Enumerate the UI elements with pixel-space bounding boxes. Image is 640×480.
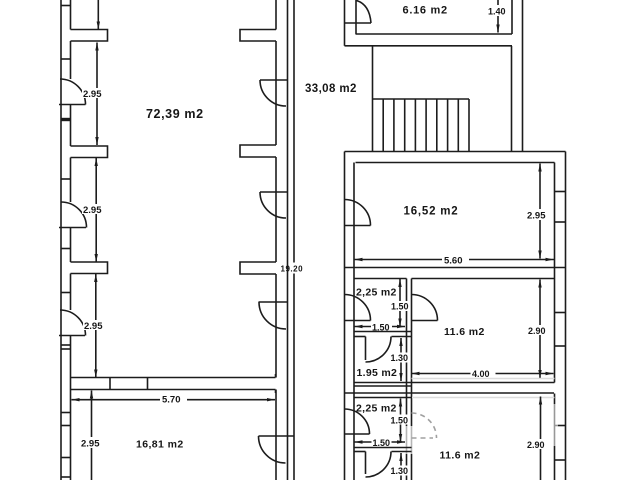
svg-text:1.50: 1.50 xyxy=(391,416,409,426)
svg-text:5.70: 5.70 xyxy=(162,395,181,406)
svg-text:1.95 m2: 1.95 m2 xyxy=(357,367,398,379)
svg-text:11.6 m2: 11.6 m2 xyxy=(440,450,481,462)
svg-text:2.95: 2.95 xyxy=(81,439,100,450)
svg-text:4.00: 4.00 xyxy=(472,369,490,379)
svg-text:1.50: 1.50 xyxy=(373,438,391,448)
svg-text:1.30: 1.30 xyxy=(391,353,409,363)
svg-text:33,08 m2: 33,08 m2 xyxy=(305,83,357,95)
svg-text:1.40: 1.40 xyxy=(488,7,506,17)
svg-text:2.95: 2.95 xyxy=(84,321,103,332)
svg-text:19.20: 19.20 xyxy=(281,265,304,274)
svg-text:2,25 m2: 2,25 m2 xyxy=(356,403,397,415)
svg-text:5.60: 5.60 xyxy=(444,256,463,267)
svg-text:2.90: 2.90 xyxy=(528,326,546,336)
svg-text:11.6 m2: 11.6 m2 xyxy=(444,326,485,338)
svg-text:2.95: 2.95 xyxy=(83,205,102,216)
svg-text:2.95: 2.95 xyxy=(83,89,102,100)
svg-text:2.95: 2.95 xyxy=(527,211,546,222)
svg-text:16,81 m2: 16,81 m2 xyxy=(136,439,184,451)
svg-text:6.16 m2: 6.16 m2 xyxy=(403,5,448,17)
svg-text:2,25 m2: 2,25 m2 xyxy=(356,287,397,299)
svg-text:72,39 m2: 72,39 m2 xyxy=(146,107,204,121)
svg-text:2.90: 2.90 xyxy=(527,440,545,450)
svg-text:16,52 m2: 16,52 m2 xyxy=(404,206,459,218)
svg-text:1.30: 1.30 xyxy=(391,466,409,476)
svg-text:1.50: 1.50 xyxy=(391,302,409,312)
